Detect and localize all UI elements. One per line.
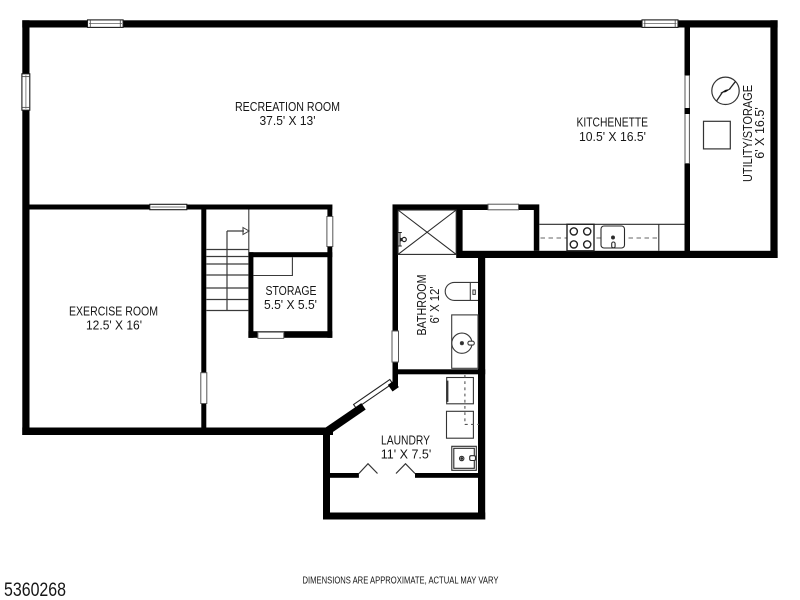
svg-text:5.5' X 5.5': 5.5' X 5.5'	[264, 297, 317, 312]
svg-text:5360268: 5360268	[4, 580, 66, 600]
svg-text:10.5' X 16.5': 10.5' X 16.5'	[579, 129, 646, 144]
svg-text:KITCHENETTE: KITCHENETTE	[577, 115, 649, 130]
svg-text:11' X 7.5': 11' X 7.5'	[381, 447, 432, 462]
svg-text:RECREATION ROOM: RECREATION ROOM	[235, 99, 340, 114]
svg-text:STORAGE: STORAGE	[266, 283, 317, 298]
svg-text:DIMENSIONS ARE APPROXIMATE, AC: DIMENSIONS ARE APPROXIMATE, ACTUAL MAY V…	[303, 575, 499, 586]
svg-text:EXERCISE ROOM: EXERCISE ROOM	[69, 304, 158, 319]
svg-text:6' X 16.5': 6' X 16.5'	[752, 107, 767, 159]
svg-text:LAUNDRY: LAUNDRY	[381, 433, 430, 448]
svg-text:6' X 12': 6' X 12'	[427, 287, 442, 324]
svg-text:12.5' X 16': 12.5' X 16'	[86, 318, 142, 333]
svg-text:37.5' X 13': 37.5' X 13'	[260, 113, 316, 128]
